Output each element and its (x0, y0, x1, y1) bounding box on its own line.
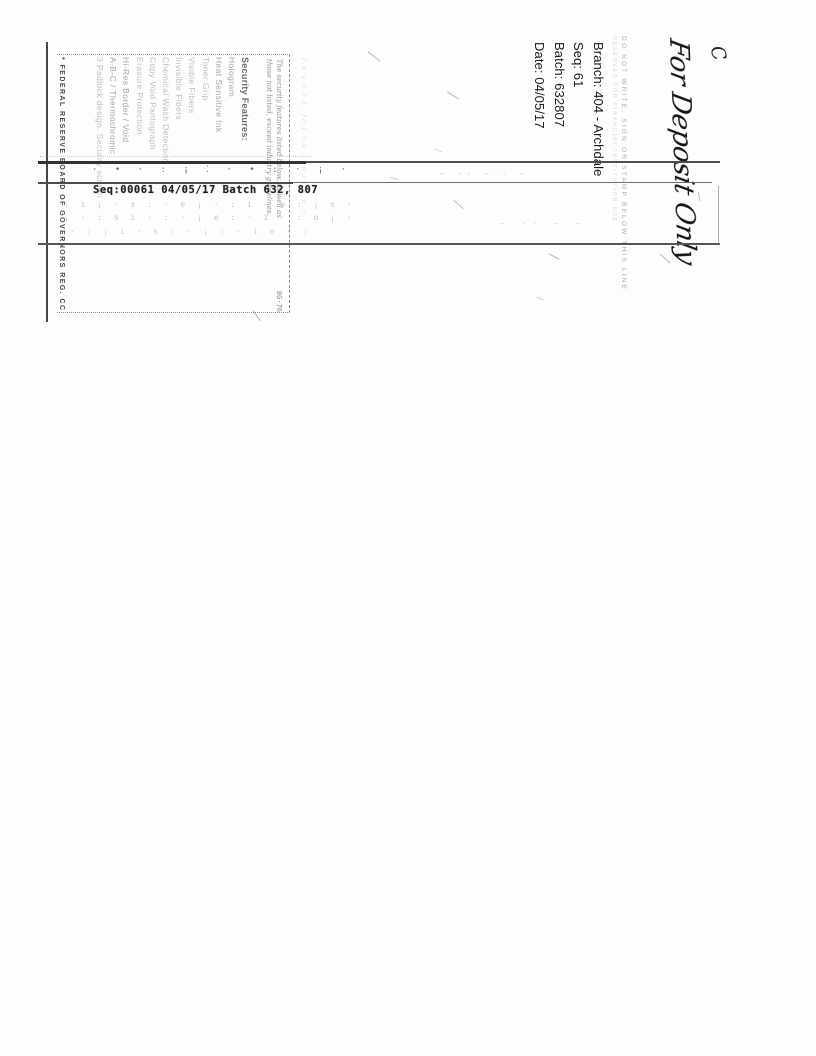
scratch-mark (536, 296, 544, 300)
stamp-dashes-top: – ‐‐ – ‐ – (440, 169, 528, 178)
handwritten-endorsement: CFor Deposit Only (636, 40, 720, 255)
scratch-mark (548, 253, 559, 260)
scratch-mark (367, 51, 380, 62)
stamp-marks-row: · • · : ¡ ⁚ · • : · ¡ · (92, 165, 352, 175)
do-not-write-line: DO NOT WRITE, SIGN OR STAMP BELOW THIS L… (620, 36, 627, 326)
meta-batch: Batch: 632807 (550, 42, 570, 220)
faint-dot-matrix-row: : i ¡ · s : · e ¡ · : i · o : ¡ s · (64, 200, 355, 209)
endorsement-line-bottom (38, 243, 720, 245)
scratch-mark (390, 177, 399, 180)
meta-date: Date: 04/05/17 (530, 42, 550, 220)
scratch-mark (447, 91, 460, 99)
endorsement-right-edge (718, 186, 719, 244)
endorsement-line-top-dark (38, 161, 306, 164)
reserved-line: RESERVED FOR FINANCIAL INSTITUTION USE (611, 36, 617, 326)
scanned-check-back: The security features listed below, as w… (0, 0, 816, 1056)
dotted-rule (40, 156, 312, 157)
faint-dot-matrix-row: · : ¡ i · s : · ¡ : · i e · : (70, 227, 311, 236)
form-code: BG-76 (275, 291, 283, 312)
for-deposit-only-text: For Deposit Only (663, 36, 702, 267)
faint-dot-matrix-row: ¡ · : s i · : · ¡ e : · i · : o ¡ · (64, 213, 355, 222)
scratch-mark (453, 200, 464, 209)
meta-branch: Branch: 404 - Archdale (589, 42, 609, 220)
deposit-meta-block: Branch: 404 - Archdale Seq: 61 Batch: 63… (526, 42, 608, 220)
bank-endorsement-stamp: Seq:00061 04/05/17 Batch 632, 807 (93, 184, 318, 196)
stamp-dashes-mid: – ·· – – (500, 219, 587, 228)
meta-seq: Seq: 61 (569, 42, 589, 220)
scratch-mark (434, 149, 442, 153)
pen-flourish: C (706, 44, 731, 63)
federal-reserve-compliance-text: * FEDERAL RESERVE BOARD OF GOVERNORS REG… (58, 57, 65, 312)
